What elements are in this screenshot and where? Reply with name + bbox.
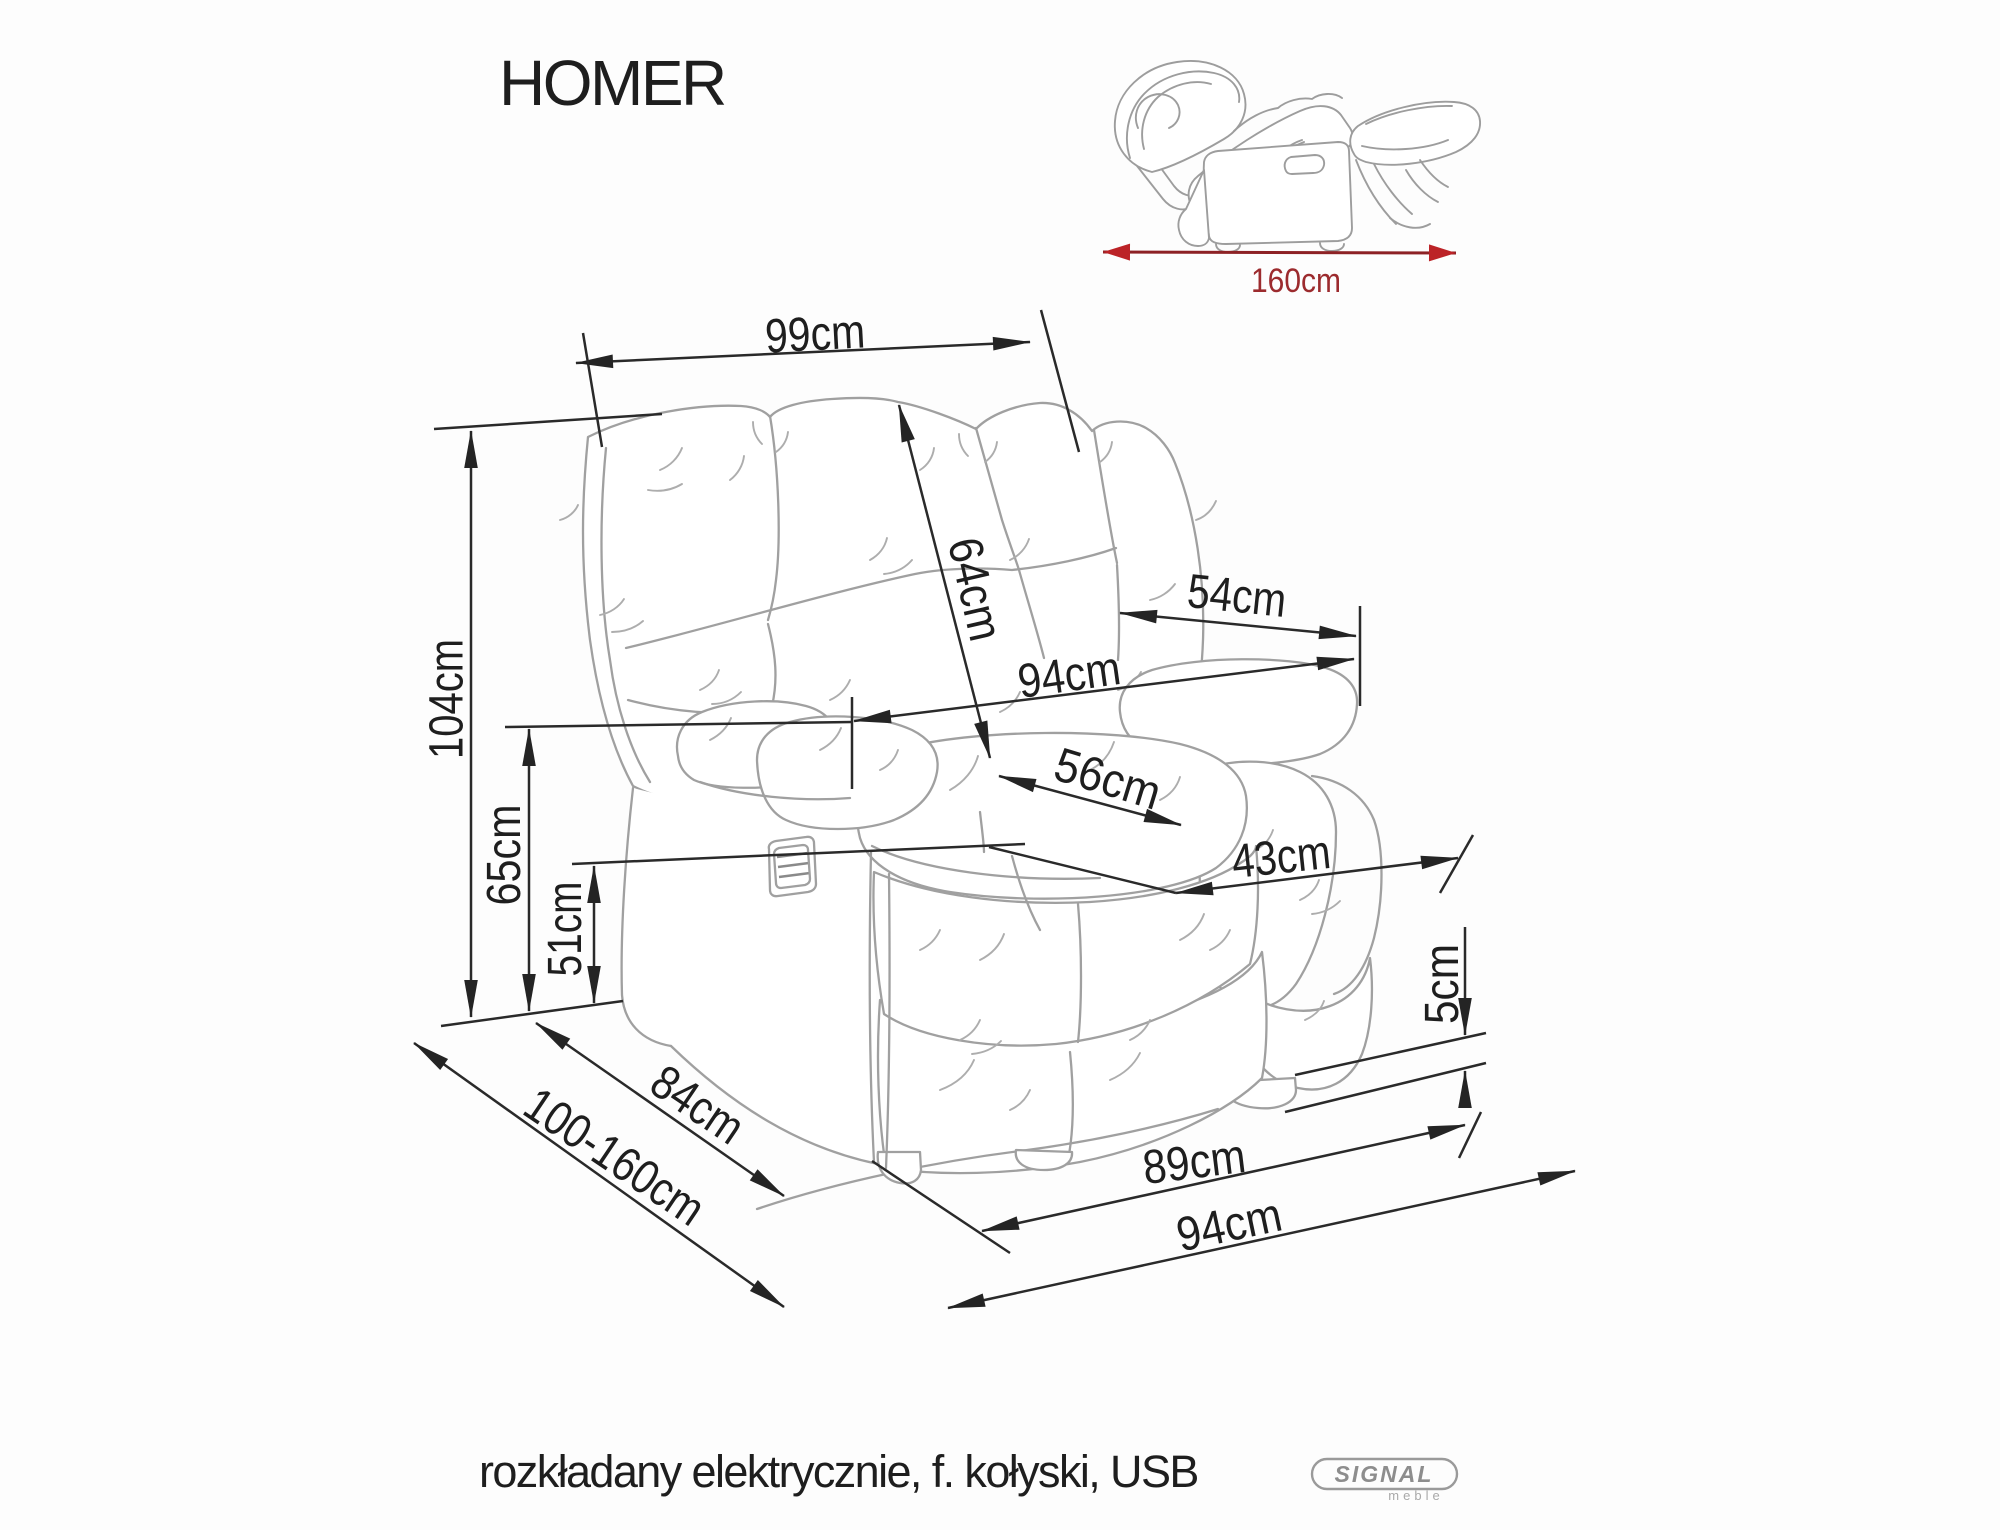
svg-text:160cm: 160cm: [1251, 262, 1341, 300]
svg-text:rozkładany elektrycznie, f. ko: rozkładany elektrycznie, f. kołyski, USB: [479, 1446, 1198, 1497]
svg-text:104cm: 104cm: [421, 639, 474, 759]
svg-text:meble: meble: [1388, 1488, 1443, 1503]
svg-text:5cm: 5cm: [1416, 944, 1469, 1024]
svg-text:HOMER: HOMER: [499, 47, 725, 119]
svg-text:43cm: 43cm: [1229, 826, 1333, 889]
svg-text:51cm: 51cm: [539, 882, 592, 977]
svg-text:54cm: 54cm: [1185, 565, 1289, 628]
svg-text:65cm: 65cm: [478, 805, 531, 906]
svg-text:99cm: 99cm: [764, 305, 867, 363]
svg-text:SIGNAL: SIGNAL: [1335, 1461, 1434, 1487]
